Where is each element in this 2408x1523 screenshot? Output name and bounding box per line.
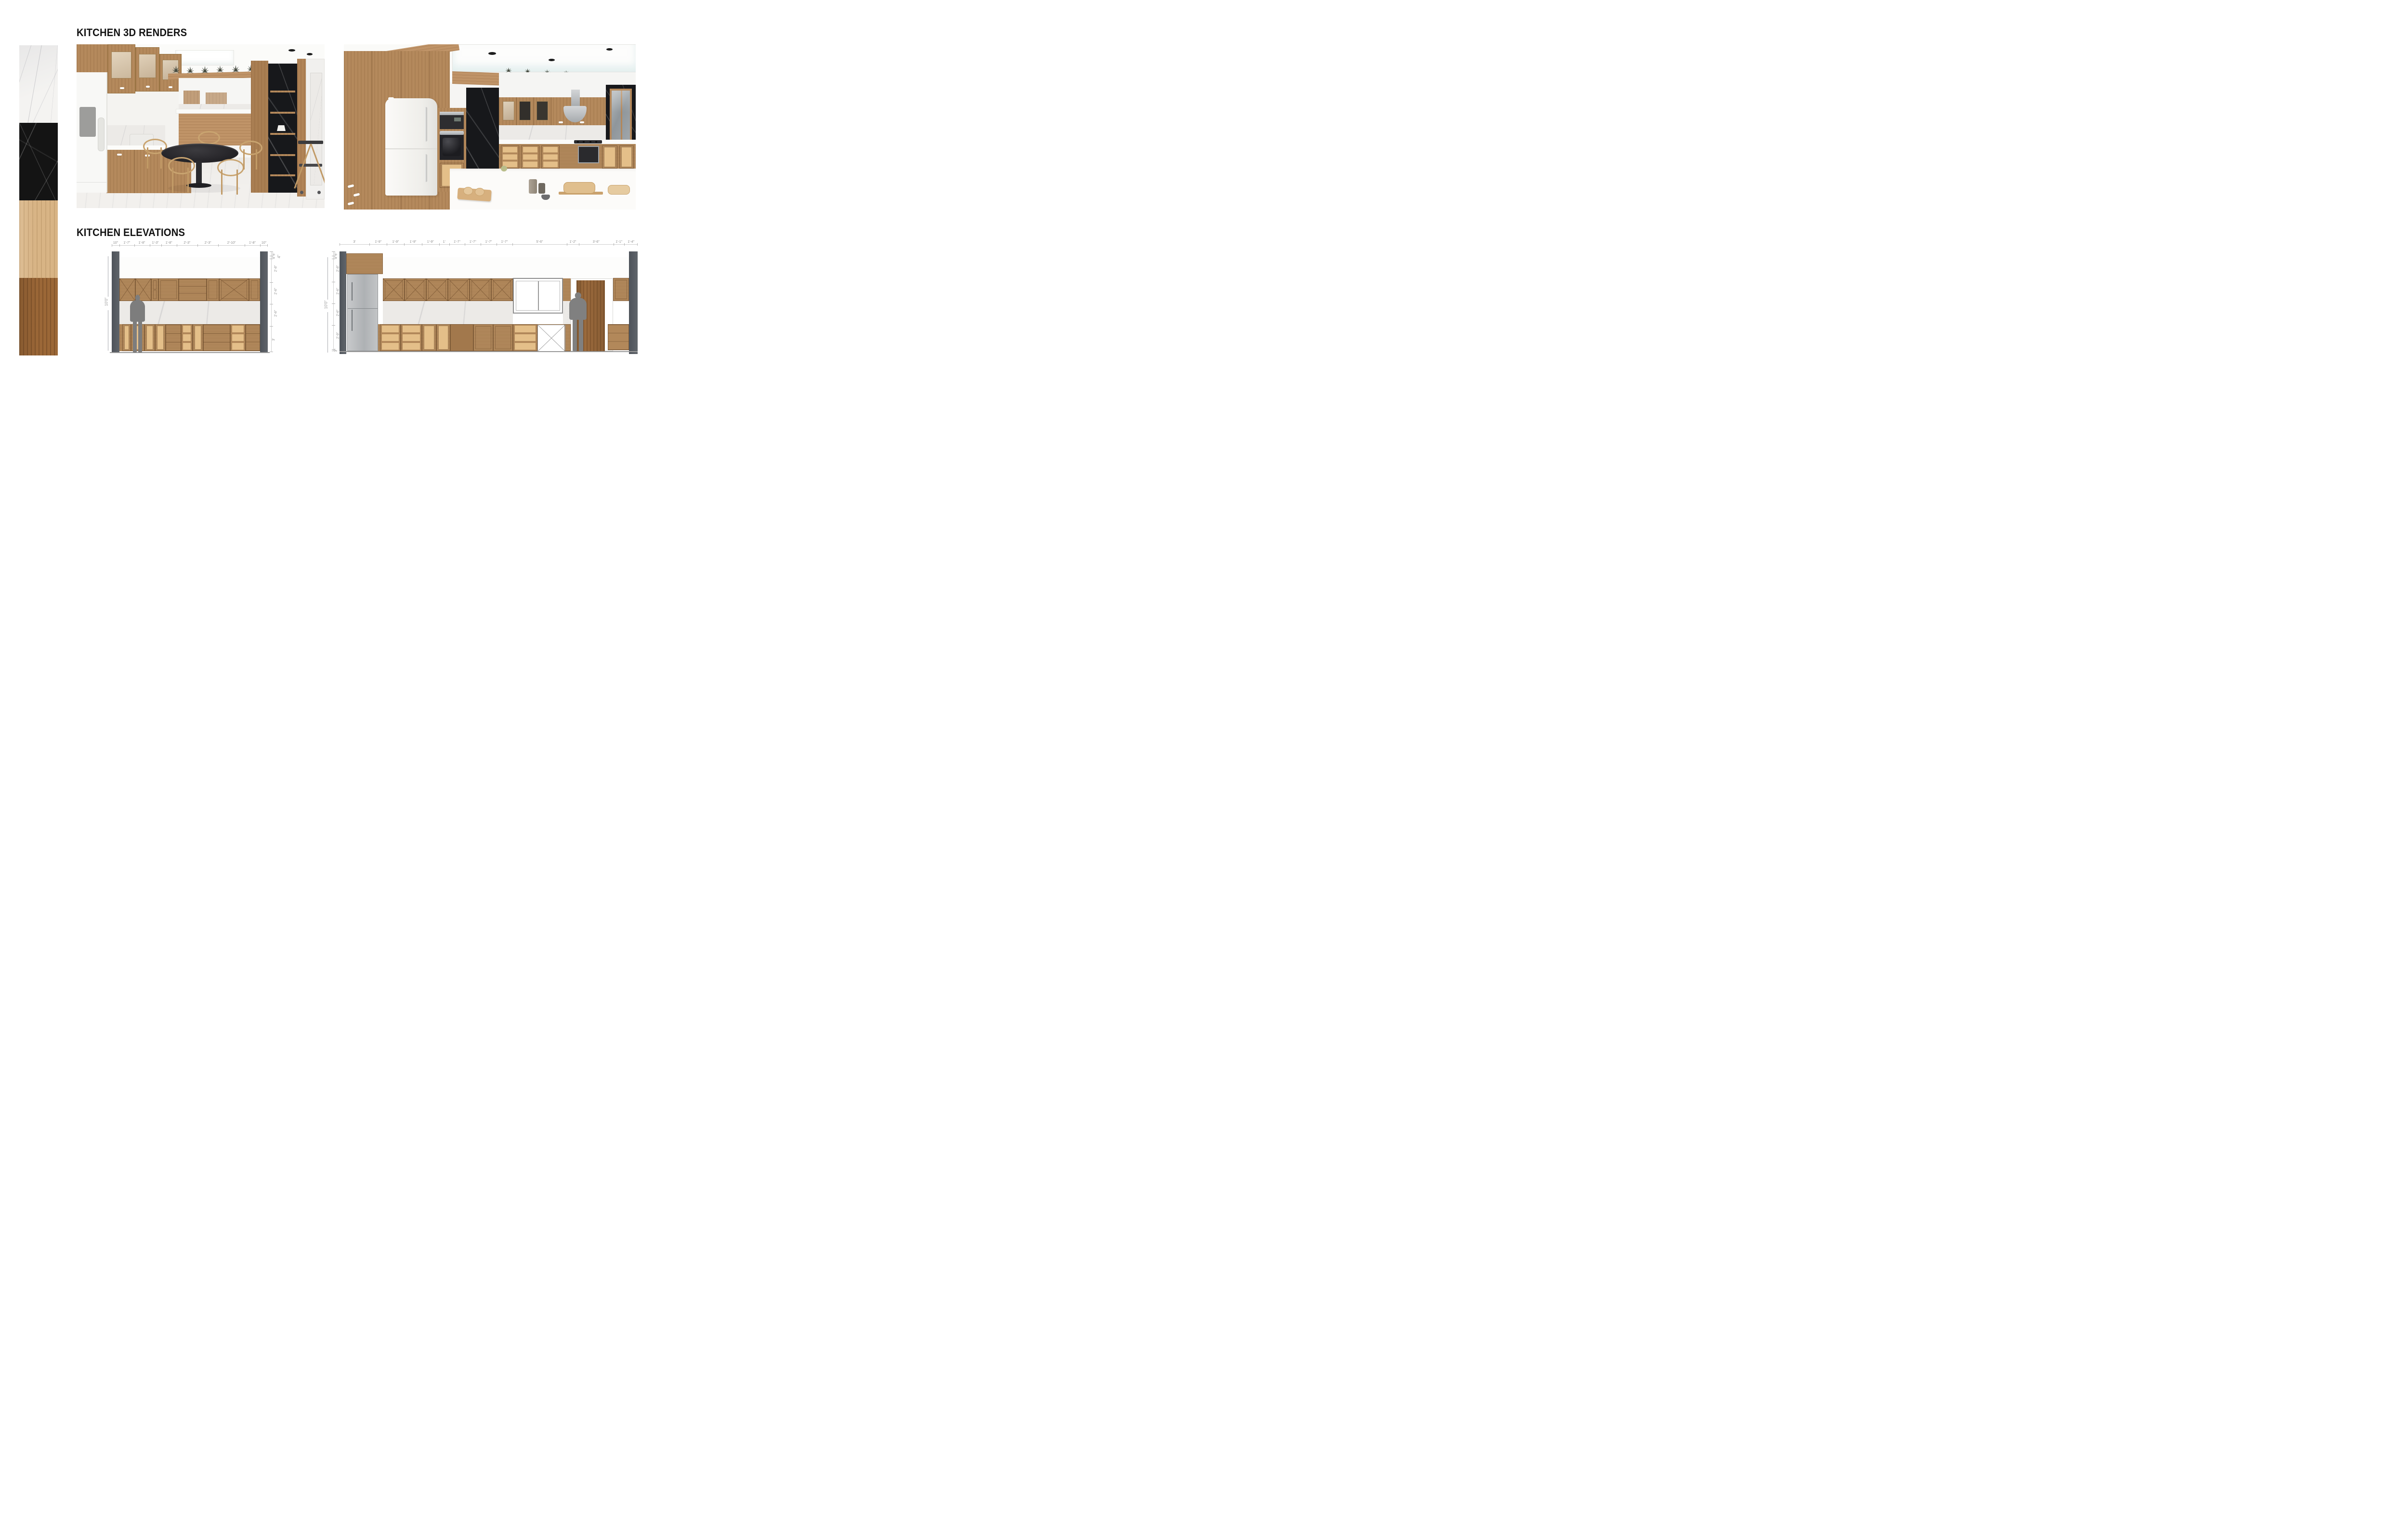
cabinet-x (450, 324, 473, 351)
shelf-lamp (277, 125, 286, 131)
drawer-stack (501, 145, 519, 169)
top-dimension-chain: 3'1'-9"1'-9"1'-9"1'-9"1'1'-7"1'-7"1'-7"1… (340, 239, 638, 245)
cabinet-door (151, 278, 158, 301)
cabinet-handle (348, 184, 354, 188)
floor-line (340, 351, 638, 352)
base-cabinets (499, 144, 636, 170)
drawer-stack (203, 324, 230, 351)
cabinet-door (144, 324, 155, 351)
shelf (270, 91, 295, 92)
fridge-screen (79, 107, 96, 137)
dark-wood-swatch (19, 278, 58, 355)
cabinet-door (473, 324, 493, 351)
gas-hob (574, 140, 602, 144)
drawer-stack (513, 324, 537, 351)
upper-cabinet (135, 47, 159, 92)
microwave (440, 112, 464, 129)
upper-cabinet (107, 44, 135, 93)
drawer-stack (230, 324, 246, 351)
bar-counter (176, 109, 253, 114)
upper-cabinet-over-fridge (77, 44, 107, 72)
shelf (270, 174, 295, 176)
pass-through-opening (179, 78, 251, 110)
elevation-left: 10'0" 10"1'-7"1'-8"1'-3"1'-8"2'-3"2'-3"2… (103, 239, 282, 358)
cabinet-handle (169, 86, 172, 88)
cabinet-door (155, 324, 166, 351)
cabinet-door (448, 278, 470, 301)
top-dimension-chain: 10"1'-7"1'-8"1'-3"1'-8"2'-3"2'-3"2'-10"1… (112, 240, 268, 246)
cabinet-door (158, 278, 179, 301)
cabinet-door (193, 324, 203, 351)
downlight (488, 52, 496, 55)
shelf (270, 133, 295, 135)
green-apple (501, 166, 507, 171)
cabinet-door (493, 324, 513, 351)
person-silhouette (129, 295, 146, 353)
wall-band (346, 257, 629, 278)
drawer-stack (521, 145, 539, 169)
drawer-stack (380, 324, 401, 351)
material-palette (19, 45, 58, 355)
cabinet-door (207, 278, 219, 301)
cabinet-door (491, 278, 513, 301)
side-dimension-chain: 6"4"2'-8"2'-6"2'-6"3' (270, 251, 275, 352)
dining-chair (198, 131, 220, 144)
renders-title: KITCHEN 3D RENDERS (77, 26, 187, 39)
window (513, 278, 563, 314)
cutting-board (457, 188, 492, 202)
downlight (606, 48, 613, 51)
wall-column (260, 251, 268, 352)
fridge-handle (425, 154, 427, 182)
frosted-glass-panel (111, 52, 132, 79)
light-wood-swatch (19, 200, 58, 278)
black-marble-shelf-niche (268, 64, 297, 193)
side-dimension-chain: 6"4"2'-8"2'-6"2'-6"2'-9"3" (332, 251, 338, 351)
table-pedestal (196, 161, 202, 185)
cabinet-door (426, 278, 448, 301)
elevation-wall (346, 251, 629, 354)
canister (529, 179, 537, 194)
black-marble-swatch (19, 123, 58, 200)
wall-column (112, 251, 119, 352)
drawer-stack (401, 324, 422, 351)
cabinet-panel (179, 278, 207, 301)
upper-cabinet-band (383, 278, 513, 301)
wall-column (340, 251, 346, 354)
total-height-label: 10'0" (324, 301, 328, 309)
wall-oven (440, 131, 464, 160)
shelf (270, 154, 295, 156)
cabinet-handle (146, 86, 150, 88)
serving-cart (297, 139, 325, 197)
retro-refrigerator (385, 98, 437, 196)
wall-end (629, 251, 638, 354)
cabinet-door (219, 278, 249, 301)
upper-cabinets (499, 97, 606, 125)
wall-band (119, 257, 260, 278)
cabinet-handle (117, 154, 122, 156)
backsplash-band (383, 301, 513, 324)
ceiling-dim-label: 4" (277, 255, 281, 258)
downlight (307, 53, 313, 55)
dark-niche (519, 101, 531, 120)
built-in-oven (578, 146, 599, 163)
glass-door (503, 101, 514, 120)
skylight-recess (175, 50, 234, 66)
elevations-title: KITCHEN ELEVATIONS (77, 226, 185, 239)
presentation-board: KITCHEN 3D RENDERS KITCHEN ELEVATIONS (0, 0, 674, 381)
canister (538, 183, 545, 194)
cabinet-handle (120, 87, 124, 89)
cabinet-door (470, 278, 491, 301)
backsplash (499, 125, 606, 140)
downlight (549, 59, 555, 61)
cabinet-handle (580, 121, 584, 123)
total-height-label: 10'0" (104, 298, 108, 306)
cabinet-handle (559, 121, 563, 123)
bread-loaf (608, 185, 630, 195)
upper-cabinet-right (613, 278, 629, 301)
hood-chimney (571, 90, 580, 107)
fridge-handle (425, 107, 427, 142)
person-silhouette (568, 292, 588, 351)
downlight (288, 49, 295, 52)
cabinet-door (383, 278, 405, 301)
cabinet-handle (348, 202, 354, 206)
white-marble-swatch (19, 45, 58, 123)
render-cooking-view (344, 44, 636, 210)
panel-over-fridge (346, 253, 383, 274)
elevation-right: 10'0" 3'1'-9"1'-9"1'-9"1'-9"1'1'-7"1'-7"… (324, 235, 642, 358)
cabinet-door (422, 324, 436, 351)
refrigerator (77, 72, 107, 193)
refrigerator (347, 274, 378, 351)
bread-bun (463, 187, 473, 195)
cabinet-panel (246, 324, 260, 351)
wood-pillar (251, 61, 268, 193)
cabinet-handle (353, 193, 360, 197)
countertop (499, 140, 636, 144)
appliance-x (537, 325, 565, 352)
cabinet-door (405, 278, 426, 301)
frosted-glass-panel (139, 54, 157, 78)
dark-niche (537, 101, 548, 120)
bread-loaf (563, 182, 595, 194)
shelf (270, 112, 295, 114)
base-cabinet-band (378, 324, 571, 351)
table-base (186, 183, 211, 188)
drawer-stack (541, 145, 560, 169)
drawer-stack (181, 324, 193, 351)
fridge-handle (98, 118, 105, 151)
cabinet-panel (249, 278, 260, 301)
cabinet-door (619, 145, 634, 169)
cabinet-door (602, 145, 617, 169)
drawer-stack (166, 324, 181, 351)
window-glass (610, 89, 632, 146)
cabinet-door (436, 324, 450, 351)
bread-bun (475, 188, 484, 196)
render-dining-view (77, 44, 325, 208)
base-cabinet-right (608, 324, 629, 350)
